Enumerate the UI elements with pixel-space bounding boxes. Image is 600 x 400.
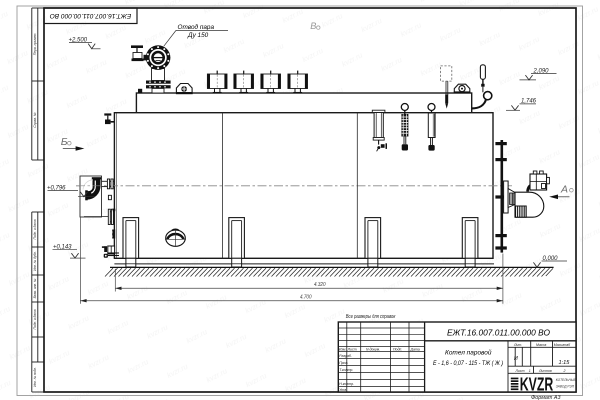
svg-text:Пров.: Пров. xyxy=(339,361,348,365)
svg-text:Лист: Лист xyxy=(515,369,525,373)
svg-text:КОТЕЛЬНЫЙ: КОТЕЛЬНЫЙ xyxy=(556,378,577,382)
svg-text:ЕЖТ.16.007.011.00.000 ВО: ЕЖТ.16.007.011.00.000 ВО xyxy=(447,327,550,337)
svg-text:2: 2 xyxy=(563,369,566,373)
svg-text:Инв. № подл.: Инв. № подл. xyxy=(33,367,37,387)
svg-text:Все размеры для справок: Все размеры для справок xyxy=(346,314,396,320)
svg-text:Дата: Дата xyxy=(410,348,420,352)
svg-text:Масштаб: Масштаб xyxy=(554,343,571,347)
svg-text:4.320: 4.320 xyxy=(314,282,326,288)
svg-text:Изм.: Изм. xyxy=(339,348,346,352)
svg-text:1:15: 1:15 xyxy=(559,360,571,366)
svg-text:Формат А3: Формат А3 xyxy=(531,395,561,400)
svg-text:Разраб.: Разраб. xyxy=(339,354,352,358)
svg-text:И: И xyxy=(514,356,518,362)
svg-text:Котел паровой: Котел паровой xyxy=(445,349,492,356)
svg-text:Листов: Листов xyxy=(538,369,552,373)
svg-text:Подп. и дата: Подп. и дата xyxy=(33,219,37,239)
svg-text:4.700: 4.700 xyxy=(300,295,312,301)
svg-text:Лит.: Лит. xyxy=(513,343,522,347)
svg-text:N докум.: N докум. xyxy=(366,348,380,352)
svg-text:Е - 1,6 - 0,07 - 115 - ТЖ ( Ж: Е - 1,6 - 0,07 - 115 - ТЖ ( Ж ) xyxy=(433,360,503,367)
svg-text:ЕЖТ.16.007.011.00.000 ВО: ЕЖТ.16.007.011.00.000 ВО xyxy=(50,12,131,19)
svg-text:Подп.: Подп. xyxy=(393,348,402,352)
svg-text:А: А xyxy=(560,183,568,195)
svg-text:1: 1 xyxy=(529,369,531,373)
svg-text:Отвод пара: Отвод пара xyxy=(178,23,215,31)
svg-text:Справ. №: Справ. № xyxy=(33,112,37,128)
svg-text:Перв. примен.: Перв. примен. xyxy=(33,33,37,56)
svg-text:Масса: Масса xyxy=(536,343,546,347)
svg-text:Утв.: Утв. xyxy=(339,388,347,392)
svg-text:Лист: Лист xyxy=(347,348,357,352)
svg-text:Н.контр.: Н.контр. xyxy=(339,382,354,386)
svg-text:Т.контр.: Т.контр. xyxy=(339,368,353,372)
svg-text:KVZR: KVZR xyxy=(520,374,554,395)
svg-text:Подп. и дата: Подп. и дата xyxy=(33,309,37,329)
svg-text:ЗАВОД РЭП: ЗАВОД РЭП xyxy=(556,385,575,389)
svg-text:В: В xyxy=(310,21,316,31)
svg-text:Ду 150: Ду 150 xyxy=(187,32,209,39)
svg-text:Б: Б xyxy=(61,136,68,148)
svg-text:Инв. № дубл.: Инв. № дубл. xyxy=(33,251,37,271)
svg-text:Взам. инв. №: Взам. инв. № xyxy=(33,278,37,298)
